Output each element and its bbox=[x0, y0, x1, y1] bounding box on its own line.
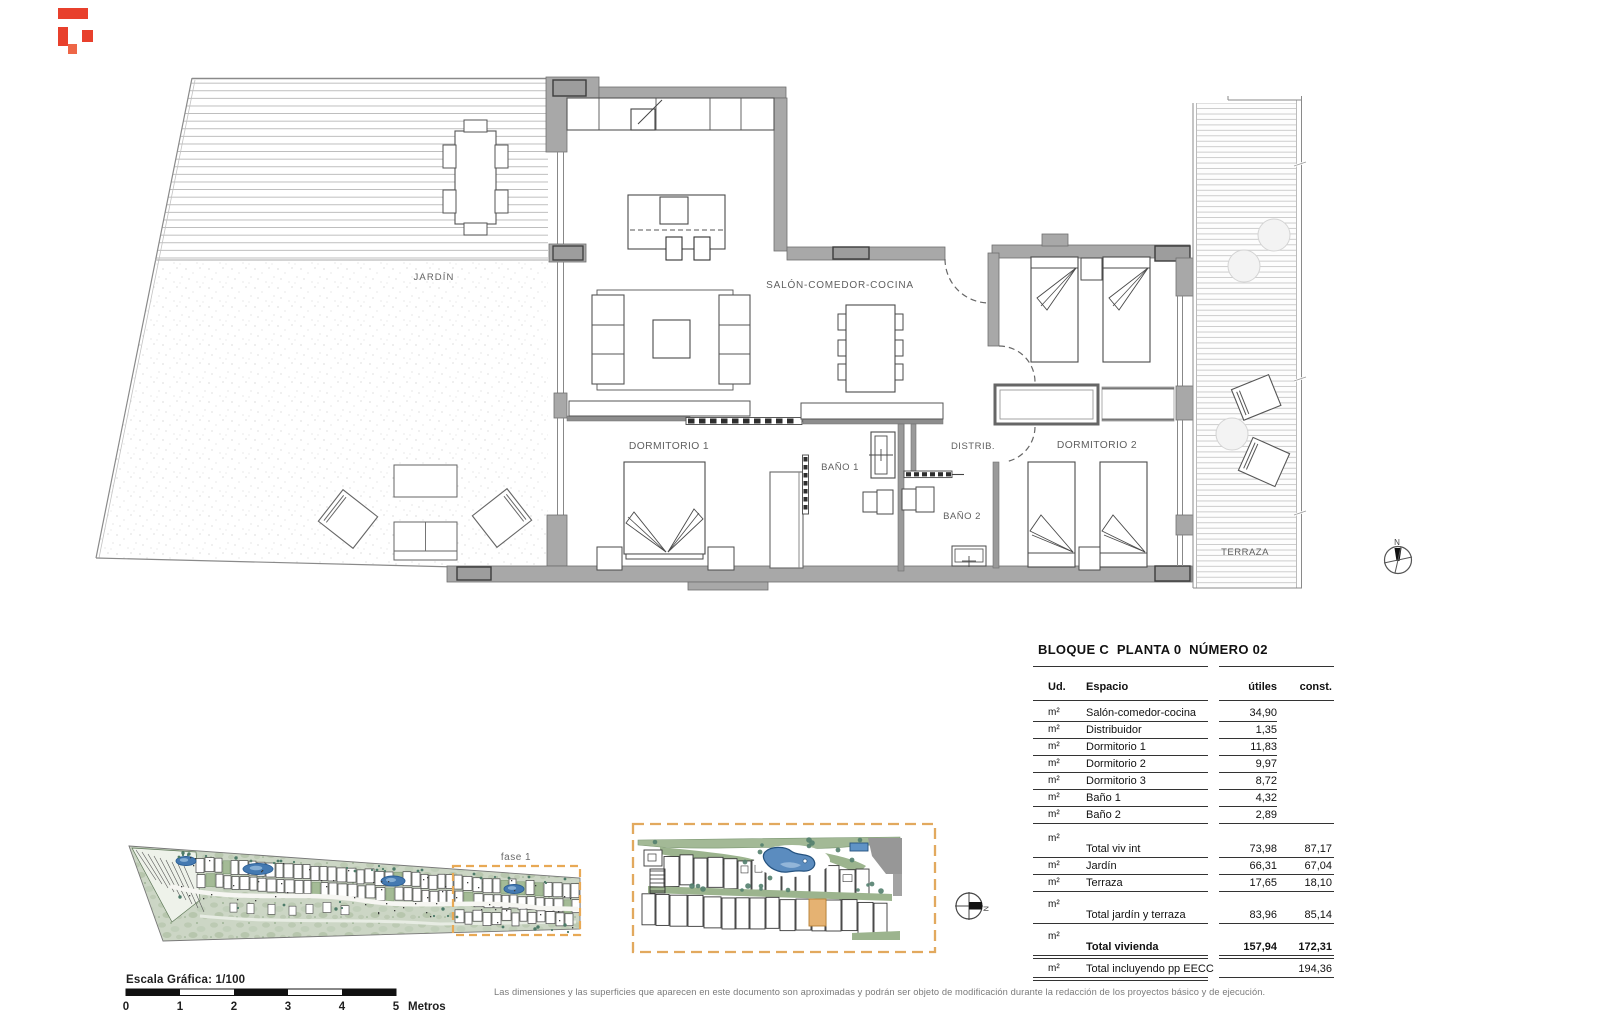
svg-text:DORMITORIO 1: DORMITORIO 1 bbox=[629, 441, 709, 452]
svg-text:BAÑO 2: BAÑO 2 bbox=[943, 511, 981, 522]
svg-text:DISTRIB.: DISTRIB. bbox=[951, 441, 995, 452]
svg-text:N: N bbox=[1394, 538, 1400, 547]
svg-text:1: 1 bbox=[177, 1001, 184, 1013]
svg-text:TERRAZA: TERRAZA bbox=[1221, 547, 1269, 558]
svg-text:Metros: Metros bbox=[408, 1001, 446, 1013]
svg-text:2: 2 bbox=[231, 1001, 237, 1013]
svg-text:4: 4 bbox=[339, 1001, 346, 1013]
svg-text:DORMITORIO 2: DORMITORIO 2 bbox=[1057, 440, 1137, 451]
svg-text:5: 5 bbox=[393, 1001, 400, 1013]
svg-text:SALÓN-COMEDOR-COCINA: SALÓN-COMEDOR-COCINA bbox=[766, 278, 914, 291]
svg-text:fase 1: fase 1 bbox=[501, 852, 531, 863]
svg-text:3: 3 bbox=[285, 1001, 291, 1013]
svg-text:BAÑO 1: BAÑO 1 bbox=[821, 462, 859, 473]
svg-text:Escala Gráfica: 1/100: Escala Gráfica: 1/100 bbox=[126, 974, 245, 986]
svg-text:N: N bbox=[982, 906, 991, 911]
svg-text:JARDÍN: JARDÍN bbox=[414, 272, 455, 283]
svg-text:0: 0 bbox=[123, 1001, 129, 1013]
